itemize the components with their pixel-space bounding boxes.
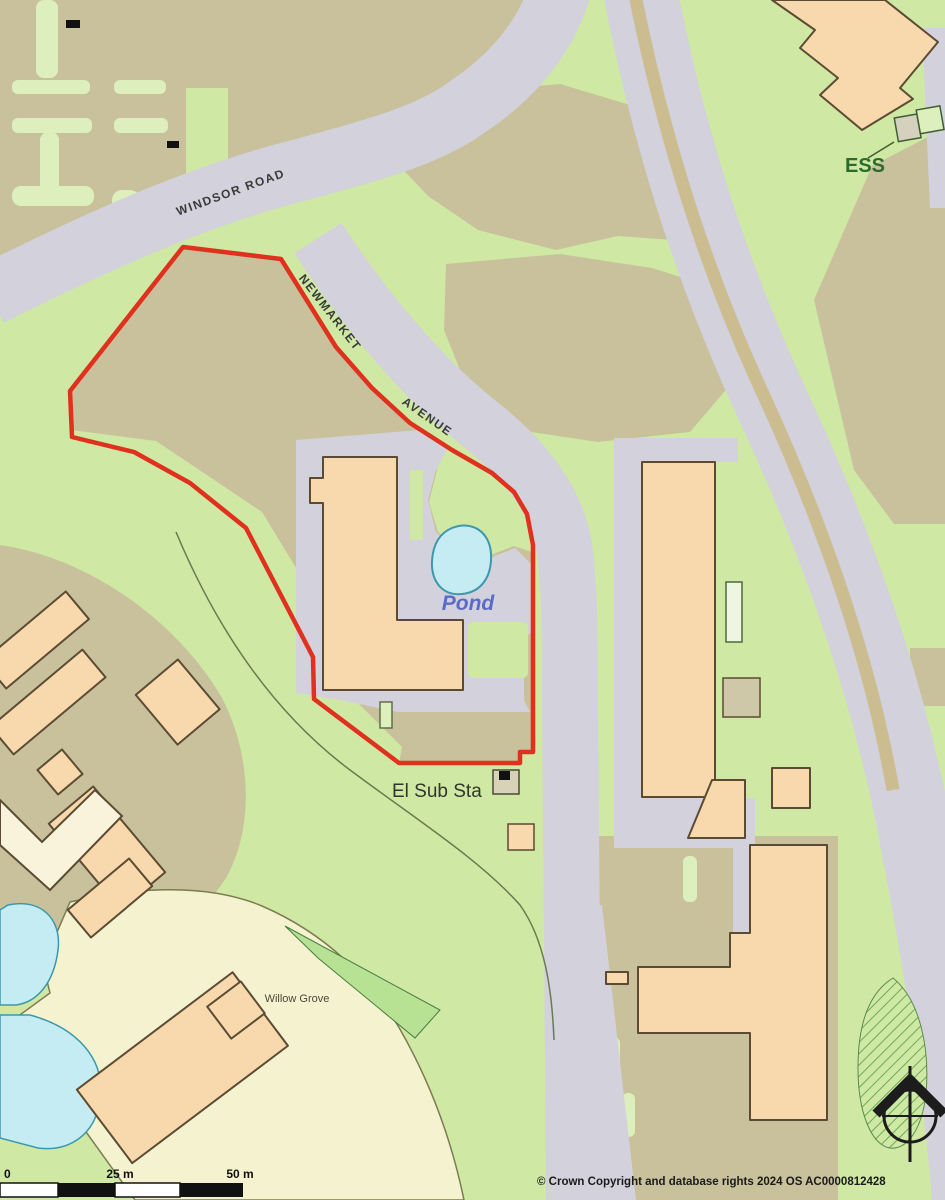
el-sub-sta-dot — [499, 771, 510, 780]
small-structure — [726, 582, 742, 642]
willow-grove-label: Willow Grove — [265, 993, 330, 1005]
el-sub-sta-label: El Sub Sta — [392, 781, 482, 802]
small-building — [606, 972, 628, 984]
tall-building — [642, 462, 715, 797]
map-marker — [167, 141, 179, 148]
pond — [432, 526, 491, 595]
scale-0-label: 0 — [4, 1167, 11, 1181]
scale-50-label: 50 m — [226, 1167, 253, 1181]
map-canvas: WINDSOR ROAD NEWMARKET AVENUE ESS Pond E… — [0, 0, 945, 1200]
small-structure — [508, 824, 534, 850]
small-structure — [723, 678, 760, 717]
map-marker — [66, 20, 80, 28]
copyright-text: © Crown Copyright and database rights 20… — [537, 1176, 886, 1188]
site-plan-map: WINDSOR ROAD NEWMARKET AVENUE ESS Pond E… — [0, 0, 945, 1200]
small-building — [772, 768, 810, 808]
grass-pocket — [468, 622, 528, 678]
grass-strip — [410, 470, 423, 540]
ess-label: ESS — [845, 155, 885, 177]
scale-25-label: 25 m — [106, 1167, 133, 1181]
pond-label: Pond — [442, 592, 496, 615]
small-structure — [380, 702, 392, 728]
